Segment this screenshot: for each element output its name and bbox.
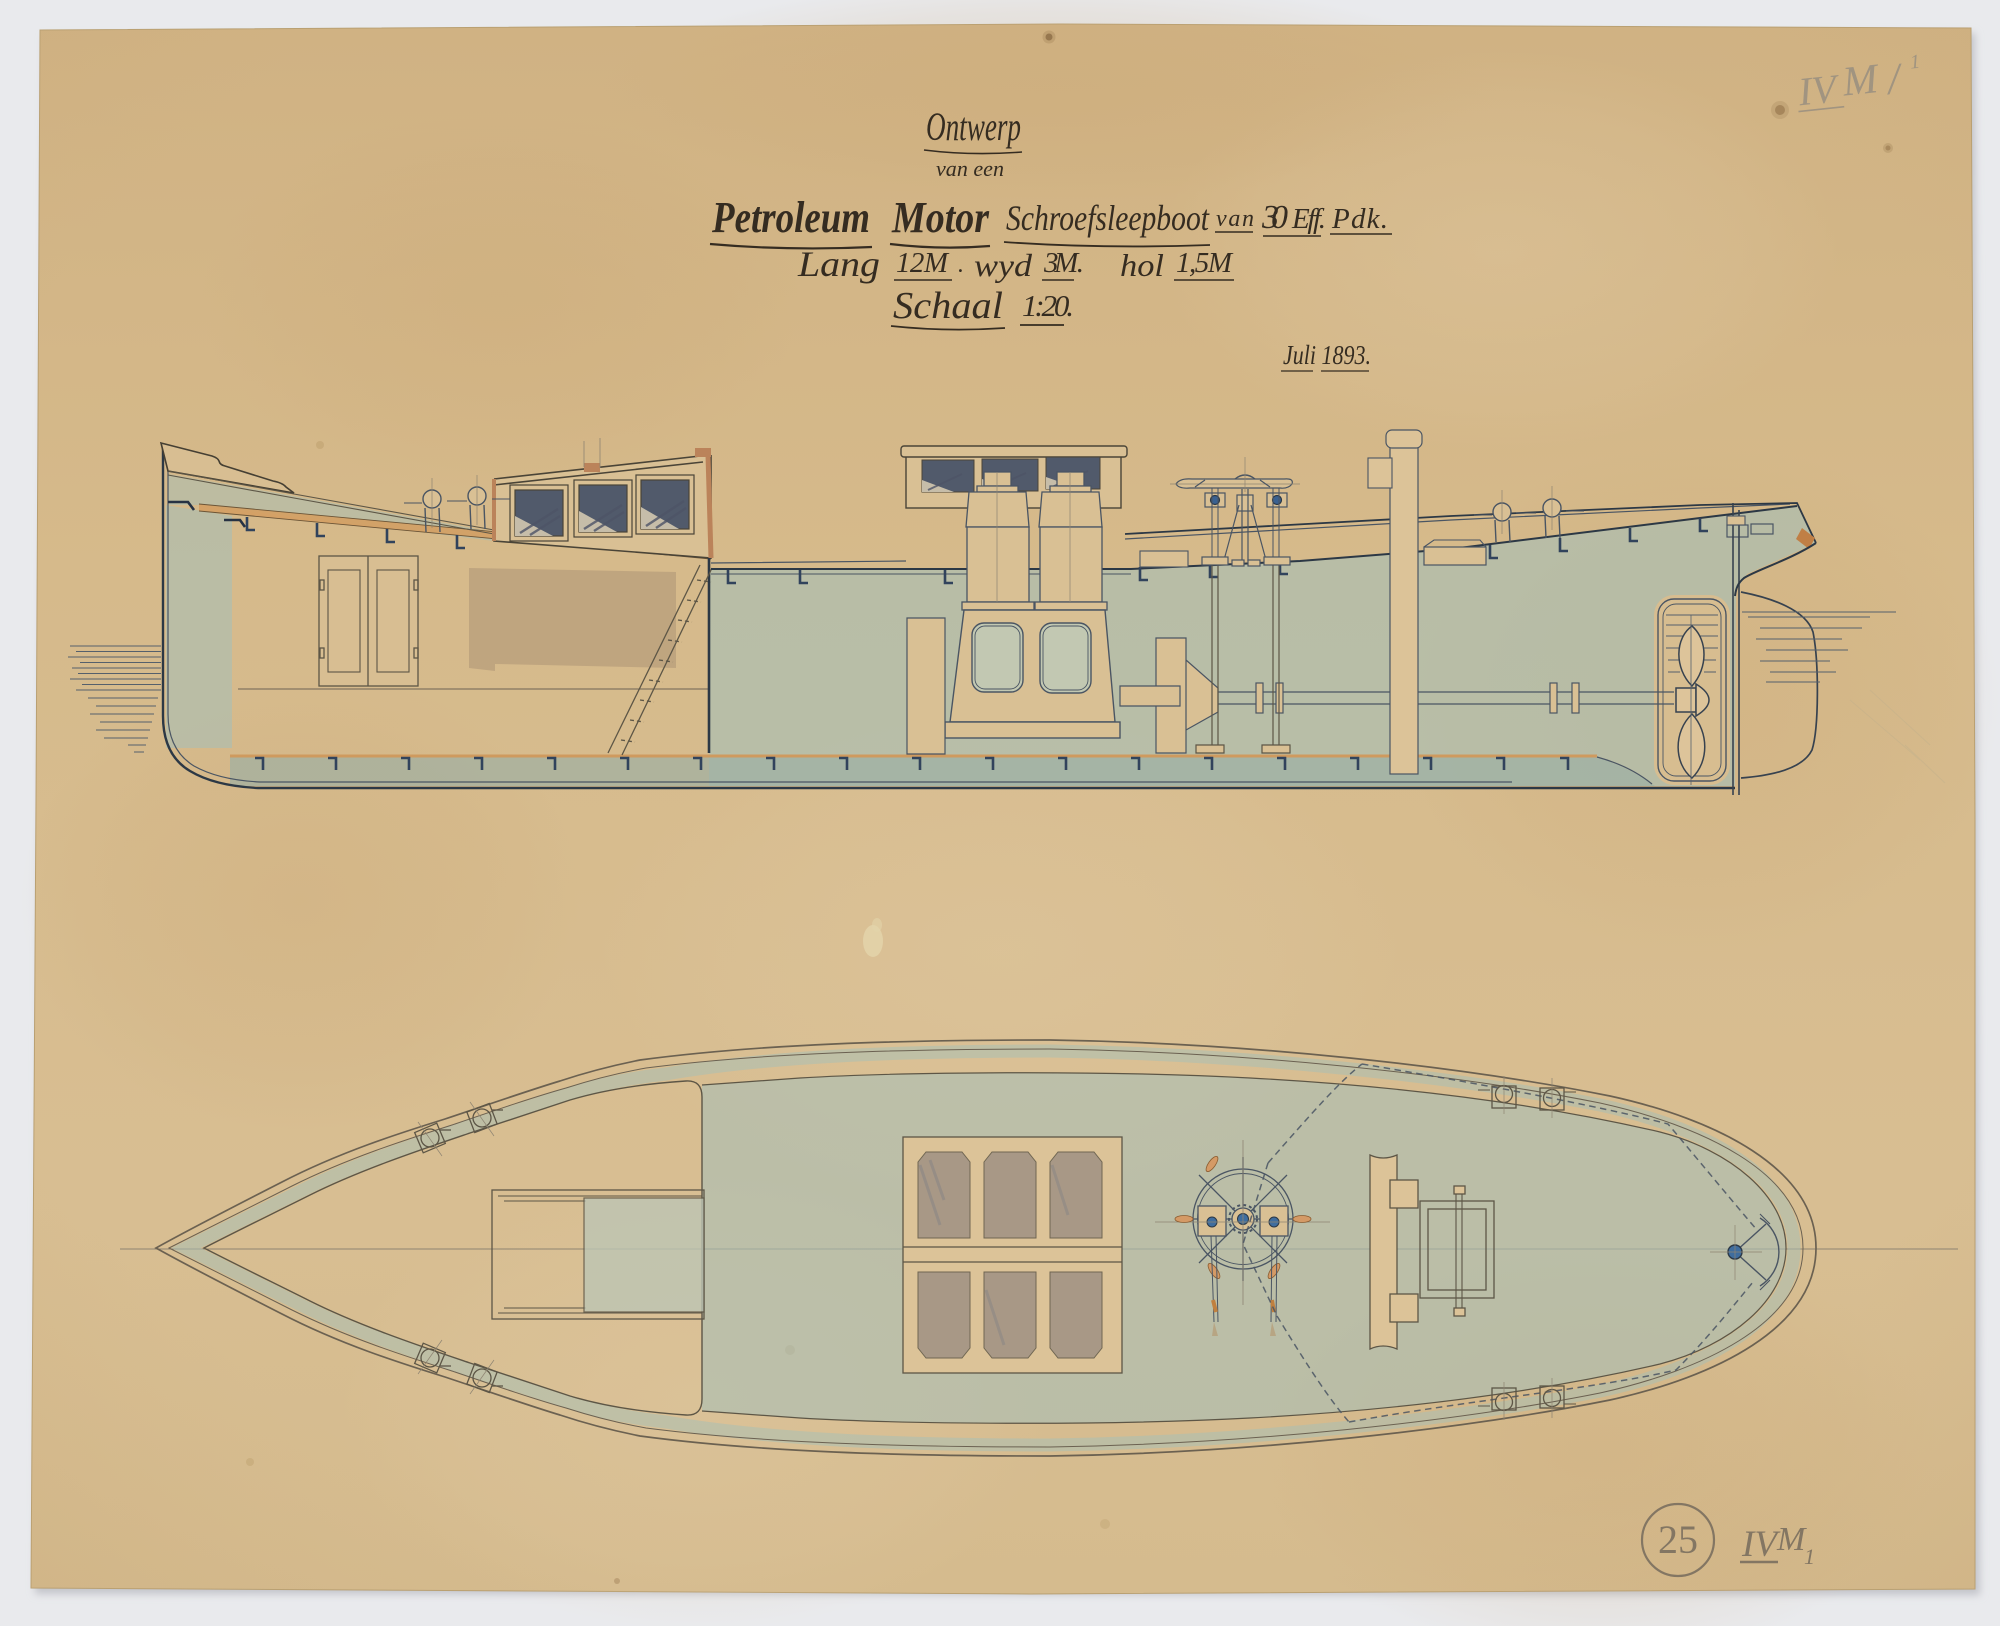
svg-text:Lang: Lang xyxy=(797,244,880,284)
svg-text:Eff.: Eff. xyxy=(1291,203,1326,235)
svg-text:Motor: Motor xyxy=(891,193,990,242)
svg-text:12M: 12M xyxy=(896,247,950,279)
svg-text:Juli 1893.: Juli 1893. xyxy=(1283,340,1371,370)
svg-text:van een: van een xyxy=(936,156,1004,181)
svg-text:Pdk.: Pdk. xyxy=(1331,203,1388,235)
svg-text:Schaal: Schaal xyxy=(893,285,1003,327)
svg-text:1:20.: 1:20. xyxy=(1022,288,1074,323)
svg-text:30: 30 xyxy=(1261,199,1288,236)
svg-text:M: M xyxy=(1839,56,1882,106)
svg-text:3M .: 3M . xyxy=(1043,247,1084,279)
svg-text:.: . xyxy=(958,252,964,278)
svg-text:1: 1 xyxy=(1804,1544,1815,1569)
svg-text:M: M xyxy=(1776,1521,1807,1558)
svg-text:25: 25 xyxy=(1658,1517,1698,1562)
svg-text:Ontwerp: Ontwerp xyxy=(926,104,1021,149)
svg-text:Schroefsleepboot: Schroefsleepboot xyxy=(1006,198,1210,238)
svg-text:wyd: wyd xyxy=(974,247,1033,283)
svg-text:IV: IV xyxy=(1741,1524,1781,1565)
svg-text:hol: hol xyxy=(1120,247,1164,283)
svg-text:1,5M: 1,5M xyxy=(1176,247,1234,279)
svg-text:Petroleum: Petroleum xyxy=(711,193,870,242)
svg-text:van: van xyxy=(1216,206,1254,232)
